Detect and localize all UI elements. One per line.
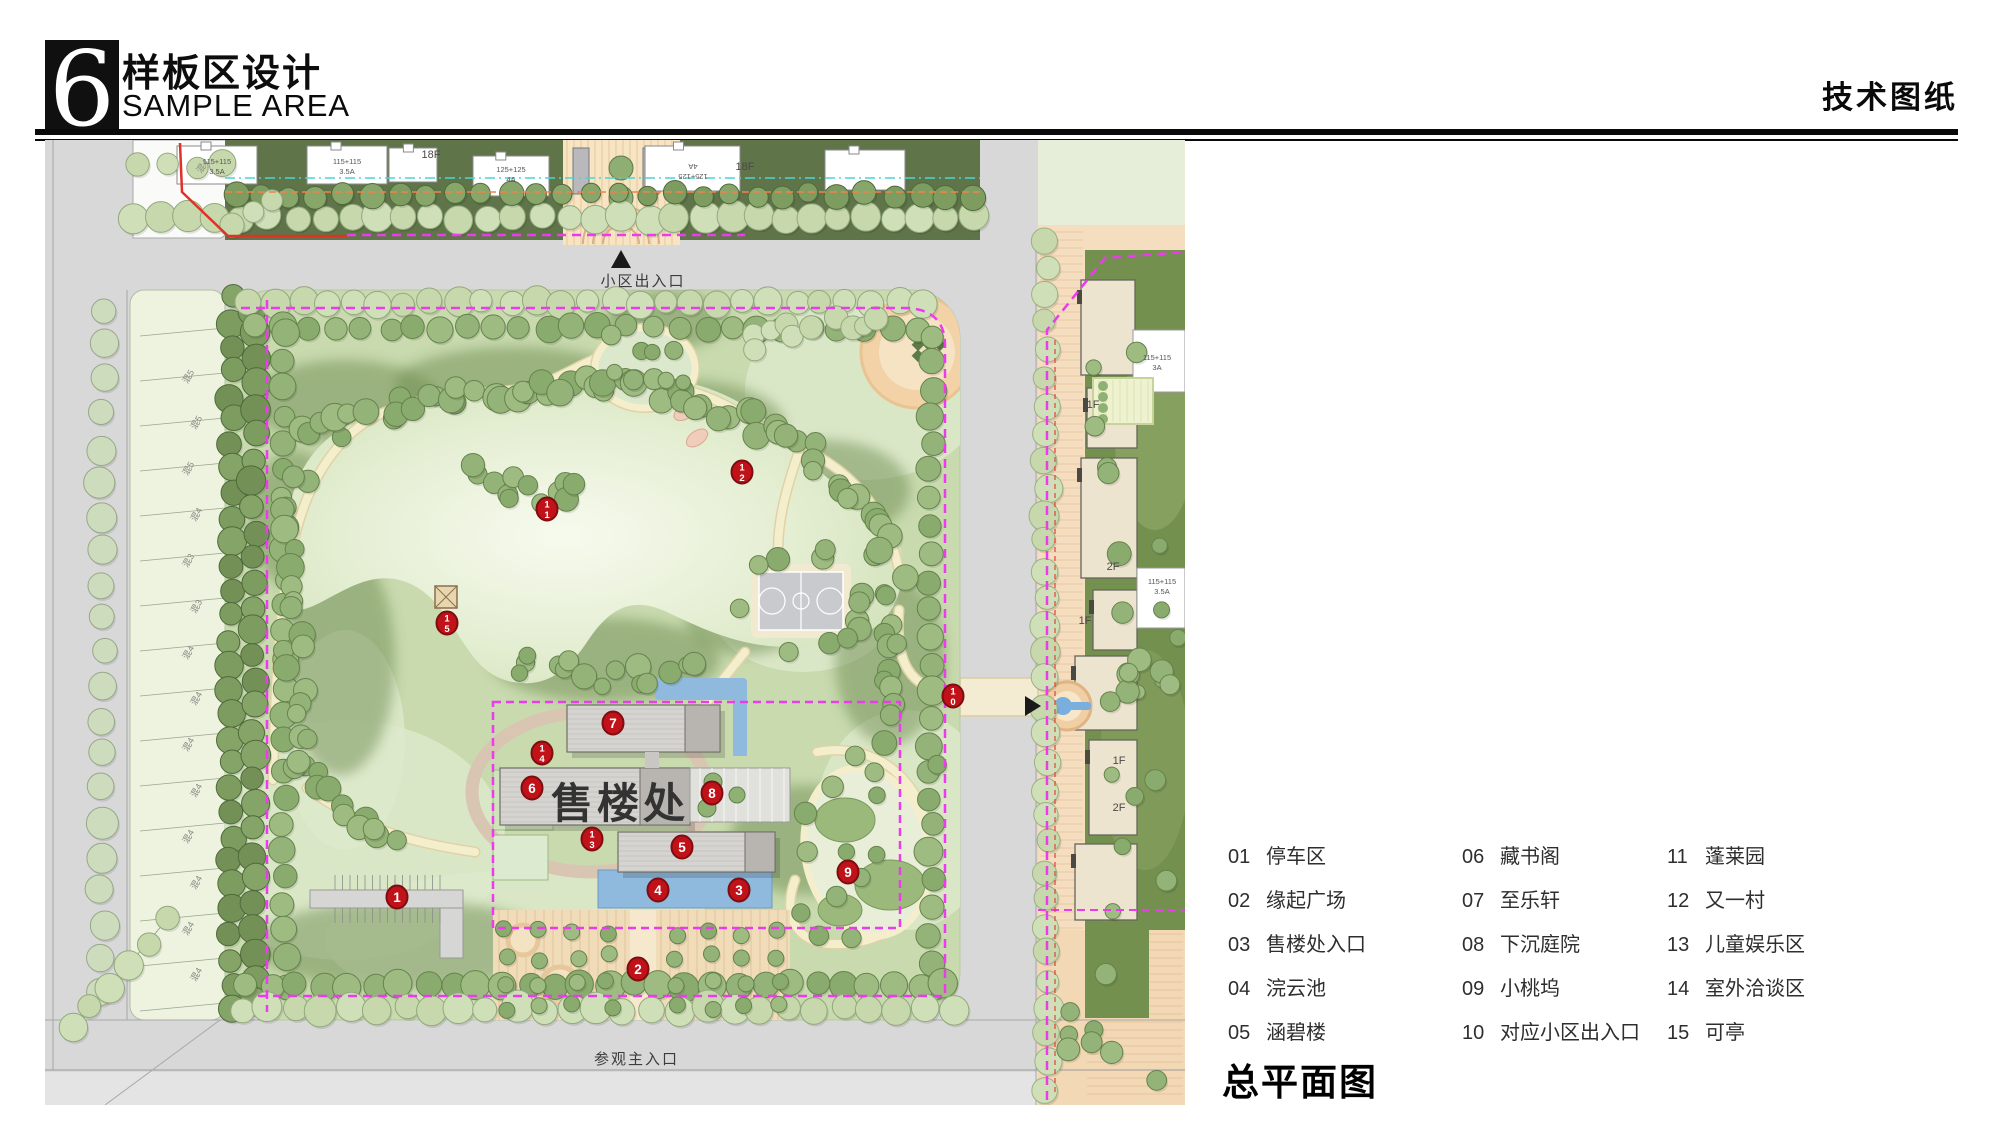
svg-text:6: 6 — [528, 781, 536, 796]
map-marker-08: 8 — [702, 782, 723, 805]
floor-label: 18F — [736, 161, 755, 173]
legend-item-label: 小桃坞 — [1500, 978, 1560, 1000]
legend-item-01: 01停车区 — [1228, 846, 1366, 868]
svg-text:5: 5 — [678, 840, 686, 855]
map-marker-09: 9 — [838, 861, 859, 884]
legend-item-14: 14室外洽谈区 — [1667, 978, 1805, 1000]
svg-text:2: 2 — [634, 962, 642, 977]
svg-text:4A: 4A — [688, 162, 697, 171]
map-marker-14: 14 — [532, 742, 553, 765]
legend-item-label: 下沉庭院 — [1500, 934, 1580, 956]
legend-column-1: 01停车区02缘起广场03售楼处入口04浣云池05涵碧楼 — [1228, 846, 1366, 1066]
svg-text:125+125: 125+125 — [496, 165, 525, 174]
floor-label: 1F — [1113, 755, 1126, 767]
svg-text:9: 9 — [844, 865, 852, 880]
legend-item-number: 01 — [1228, 846, 1254, 868]
plan-title: 总平面图 — [1222, 1052, 1378, 1106]
map-marker-04: 4 — [648, 879, 669, 902]
map-marker-07: 7 — [603, 712, 624, 735]
legend-item-label: 至乐轩 — [1500, 890, 1560, 912]
legend-item-label: 藏书阁 — [1500, 846, 1560, 868]
legend-item-label: 可亭 — [1705, 1022, 1745, 1044]
floor-label: 1F — [1079, 615, 1092, 627]
legend-item-number: 06 — [1462, 846, 1488, 868]
legend-item-number: 11 — [1667, 846, 1693, 868]
svg-text:3.5A: 3.5A — [209, 167, 224, 176]
legend-item-label: 缘起广场 — [1266, 890, 1346, 912]
legend-item-number: 05 — [1228, 1022, 1254, 1044]
legend-item-label: 对应小区出入口 — [1500, 1022, 1640, 1044]
road-label: 参观主入口 — [594, 1051, 679, 1068]
legend-item-label: 蓬莱园 — [1705, 846, 1765, 868]
legend-item-number: 14 — [1667, 978, 1693, 1000]
legend-item-number: 10 — [1462, 1022, 1488, 1044]
legend-item-number: 04 — [1228, 978, 1254, 1000]
map-marker-13: 13 — [582, 828, 603, 851]
legend-item-number: 12 — [1667, 890, 1693, 912]
logo-glyph: 6 — [45, 40, 119, 134]
svg-text:3.5A: 3.5A — [339, 167, 354, 176]
legend-item-label: 又一村 — [1705, 890, 1765, 912]
svg-text:3.5A: 3.5A — [1154, 587, 1169, 596]
svg-text:5: 5 — [444, 624, 450, 635]
map-marker-01: 1 — [387, 886, 408, 909]
svg-text:4: 4 — [654, 883, 662, 898]
legend-item-02: 02缘起广场 — [1228, 890, 1366, 912]
legend-item-label: 涵碧楼 — [1266, 1022, 1326, 1044]
legend-item-03: 03售楼处入口 — [1228, 934, 1366, 956]
legend-item-11: 11蓬莱园 — [1667, 846, 1805, 868]
svg-text:3A: 3A — [1152, 363, 1161, 372]
legend-item-number: 07 — [1462, 890, 1488, 912]
floor-label: 2F — [1113, 802, 1126, 814]
svg-text:115+115: 115+115 — [333, 157, 361, 166]
svg-text:125+125: 125+125 — [678, 172, 707, 181]
legend-item-number: 03 — [1228, 934, 1254, 956]
legend-item-04: 04浣云池 — [1228, 978, 1366, 1000]
svg-text:3: 3 — [735, 883, 743, 898]
svg-text:1: 1 — [544, 510, 550, 521]
legend-item-12: 12又一村 — [1667, 890, 1805, 912]
legend-item-number: 15 — [1667, 1022, 1693, 1044]
header-rule-thick — [35, 129, 1958, 135]
legend-item-label: 售楼处入口 — [1266, 934, 1366, 956]
legend-item-08: 08下沉庭院 — [1462, 934, 1640, 956]
legend-item-15: 15可亭 — [1667, 1022, 1805, 1044]
svg-text:4A: 4A — [506, 175, 515, 184]
svg-text:4: 4 — [539, 754, 545, 765]
map-marker-15: 15 — [437, 612, 458, 635]
legend-column-2: 06藏书阁07至乐轩08下沉庭院09小桃坞10对应小区出入口 — [1462, 846, 1640, 1066]
svg-text:115+115: 115+115 — [1148, 577, 1176, 586]
svg-text:2: 2 — [739, 473, 744, 484]
legend-item-09: 09小桃坞 — [1462, 978, 1640, 1000]
floor-label: 18F — [422, 149, 441, 161]
legend-item-number: 02 — [1228, 890, 1254, 912]
legend-item-05: 05涵碧楼 — [1228, 1022, 1366, 1044]
svg-text:3: 3 — [589, 840, 594, 851]
legend-item-number: 09 — [1462, 978, 1488, 1000]
road-label: 小区出入口 — [600, 273, 685, 290]
site-plan-svg: 小区出入口参观主入口售楼处1F2F1F1F2F18F18F115+1153.5A… — [45, 140, 1185, 1105]
svg-text:7: 7 — [609, 716, 617, 731]
legend-column-3: 11蓬莱园12又一村13儿童娱乐区14室外洽谈区15可亭 — [1667, 846, 1805, 1066]
legend-item-number: 08 — [1462, 934, 1488, 956]
svg-text:8: 8 — [708, 786, 716, 801]
legend-item-label: 浣云池 — [1266, 978, 1326, 1000]
legend-item-label: 停车区 — [1266, 846, 1326, 868]
page: 6 样板区设计 SAMPLE AREA 技术图纸 小区出入口参观主入口售楼处1F… — [0, 0, 1995, 1122]
floor-label: 1F — [1087, 399, 1100, 411]
map-marker-05: 5 — [672, 836, 693, 859]
legend-item-label: 室外洽谈区 — [1705, 978, 1805, 1000]
svg-text:1: 1 — [393, 890, 401, 905]
map-marker-06: 6 — [522, 777, 543, 800]
floor-label: 2F — [1107, 561, 1120, 573]
legend-item-13: 13儿童娱乐区 — [1667, 934, 1805, 956]
svg-text:115+115: 115+115 — [1143, 353, 1171, 362]
map-marker-11: 11 — [537, 498, 558, 521]
map-marker-03: 3 — [729, 879, 750, 902]
svg-text:0: 0 — [950, 697, 955, 708]
legend-item-06: 06藏书阁 — [1462, 846, 1640, 868]
map-marker-02: 2 — [628, 958, 649, 981]
legend-item-10: 10对应小区出入口 — [1462, 1022, 1640, 1044]
logo: 6 — [45, 40, 119, 134]
doc-type-label: 技术图纸 — [1822, 72, 1958, 117]
sales-office-label: 售楼处 — [551, 780, 689, 827]
doc-title-en: SAMPLE AREA — [122, 88, 350, 124]
legend-item-number: 13 — [1667, 934, 1693, 956]
legend-item-07: 07至乐轩 — [1462, 890, 1640, 912]
site-plan: 小区出入口参观主入口售楼处1F2F1F1F2F18F18F115+1153.5A… — [45, 140, 1185, 1105]
map-marker-12: 12 — [732, 461, 753, 484]
legend-item-label: 儿童娱乐区 — [1705, 934, 1805, 956]
map-marker-10: 10 — [943, 685, 964, 708]
